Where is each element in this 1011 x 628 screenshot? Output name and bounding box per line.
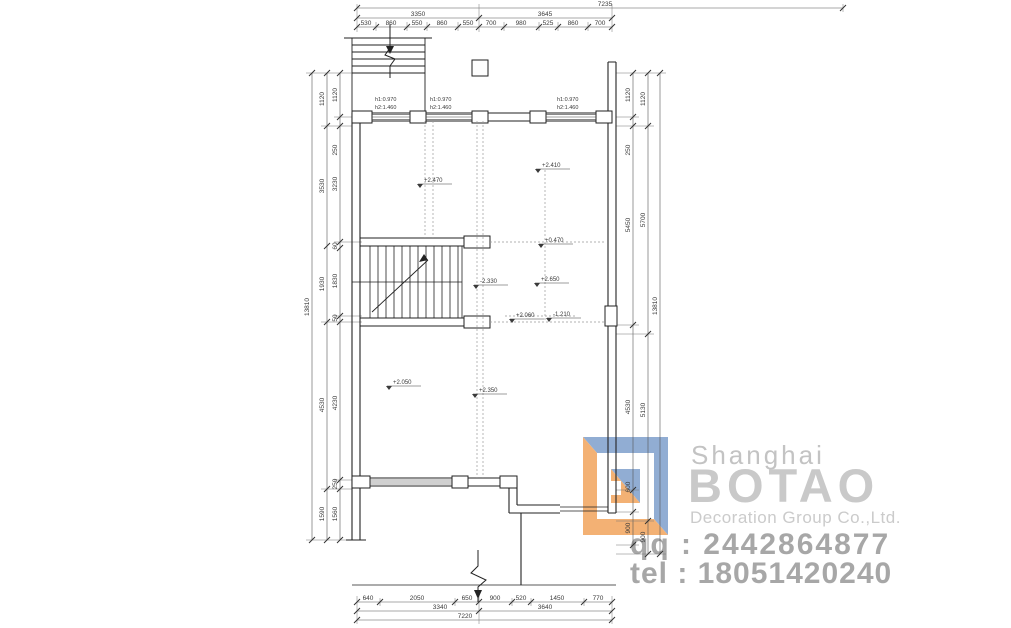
window-height-label: h1:0.970	[557, 97, 578, 103]
dim-label: 600	[625, 481, 632, 492]
dim-label: 3640	[538, 604, 553, 611]
dim-label: 60	[332, 242, 339, 250]
dim-label: 7220	[458, 613, 473, 620]
dim-label: 860	[386, 20, 397, 27]
level-labels: +2.470 +2.410 +0.470 -2.330 +2.650 +2.06…	[393, 163, 571, 394]
dim-label: 3230	[332, 176, 339, 191]
dim-label: 3350	[411, 11, 426, 18]
dim-label: 1560	[332, 506, 339, 521]
wall-piers	[352, 60, 617, 488]
dim-label: 700	[595, 20, 606, 27]
dim-label: 13810	[652, 297, 659, 315]
dim-label: 4230	[332, 395, 339, 410]
dim-label: 3340	[433, 604, 448, 611]
dim-label: 550	[463, 20, 474, 27]
dim-label: 900	[640, 531, 647, 542]
dim-label: 1120	[640, 92, 647, 106]
dim-label: 250	[332, 478, 339, 489]
floor-plan-canvas: 7235 3350 3645 530 860 550 860 550 700 9…	[0, 0, 1011, 628]
dim-label: 5130	[640, 402, 647, 417]
dim-label: 860	[437, 20, 448, 27]
dim-label: 2050	[410, 595, 425, 602]
dim-label: 900	[625, 522, 632, 533]
dim-label: 1120	[332, 88, 339, 102]
dim-label: 1450	[550, 595, 565, 602]
dim-label: 640	[363, 595, 374, 602]
left-dimension-labels: 1120 250 3230 60 1830 50 4230 250 1560 1…	[304, 88, 339, 522]
level-label: +0.470	[545, 238, 564, 244]
dim-label: 520	[516, 595, 527, 602]
column-square	[472, 60, 488, 76]
level-label: +2.470	[424, 178, 443, 184]
dim-label: 650	[462, 595, 473, 602]
bottom-dimension-labels: 640 2050 650 900 520 1450 770 3340 3640 …	[363, 595, 604, 620]
level-label: +2.650	[541, 277, 560, 283]
level-label: +2.410	[542, 163, 561, 169]
dim-label: 5700	[640, 212, 647, 227]
window-height-label: h2:1.460	[430, 105, 451, 111]
dim-label: 525	[543, 20, 554, 27]
dim-label: 7235	[598, 1, 613, 8]
dim-label: 550	[412, 20, 423, 27]
dim-label: 250	[332, 144, 339, 155]
window-height-annotations: h1:0.970 h2:1.460 h1:0.970 h2:1.460 h1:0…	[375, 97, 578, 111]
dim-label: 13810	[304, 298, 311, 316]
level-label: +2.050	[393, 380, 412, 386]
window-height-label: h2:1.460	[557, 105, 578, 111]
dim-label: 3645	[538, 11, 553, 18]
dim-label: 1120	[625, 88, 632, 102]
dim-label: 50	[332, 314, 339, 322]
right-dimension-labels: 1120 250 5450 4530 600 900 1120 5700 513…	[625, 88, 659, 543]
dim-label: 1830	[332, 273, 339, 288]
window-height-label: h1:0.970	[375, 97, 396, 103]
stair-direction-arrow	[372, 260, 428, 312]
dim-label: 980	[516, 20, 527, 27]
dim-label: 3530	[319, 178, 326, 193]
dim-label: 530	[361, 20, 372, 27]
dim-label: 700	[486, 20, 497, 27]
dotted-guides	[425, 121, 606, 478]
level-label: +2.060	[516, 313, 535, 319]
level-label: -1.210	[553, 312, 571, 318]
level-label: -2.330	[480, 279, 498, 285]
top-dimension-labels: 7235 3350 3645 530 860 550 860 550 700 9…	[361, 1, 613, 27]
window-height-label: h2:1.460	[375, 105, 396, 111]
dim-label: 1120	[319, 92, 326, 106]
dim-label: 1930	[319, 276, 326, 291]
dim-label: 4530	[625, 399, 632, 414]
level-label: +2.350	[479, 388, 498, 394]
dim-label: 860	[568, 20, 579, 27]
dim-label: 770	[593, 595, 604, 602]
dim-label: 1590	[319, 506, 326, 521]
window-height-label: h1:0.970	[430, 97, 451, 103]
floor-plan-page: Shanghai BOTAO Decoration Group Co.,Ltd.…	[0, 0, 1011, 628]
dim-label: 5450	[625, 217, 632, 232]
stairs	[352, 246, 462, 318]
dim-label: 250	[625, 144, 632, 155]
dim-label: 4530	[319, 397, 326, 412]
dim-label: 900	[490, 595, 501, 602]
